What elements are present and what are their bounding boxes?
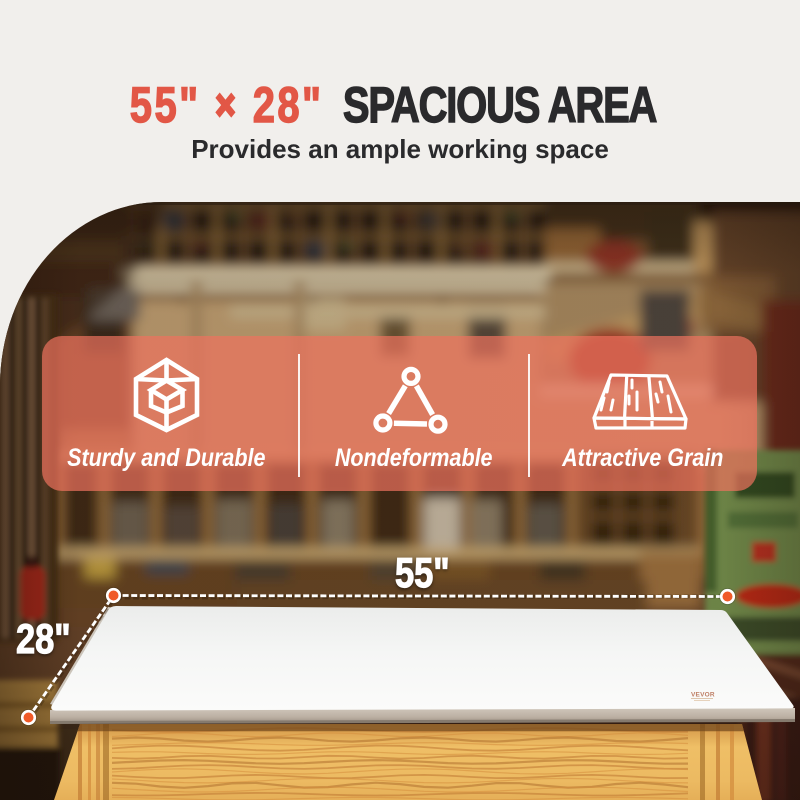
svg-text:VEVOR: VEVOR xyxy=(691,692,715,699)
